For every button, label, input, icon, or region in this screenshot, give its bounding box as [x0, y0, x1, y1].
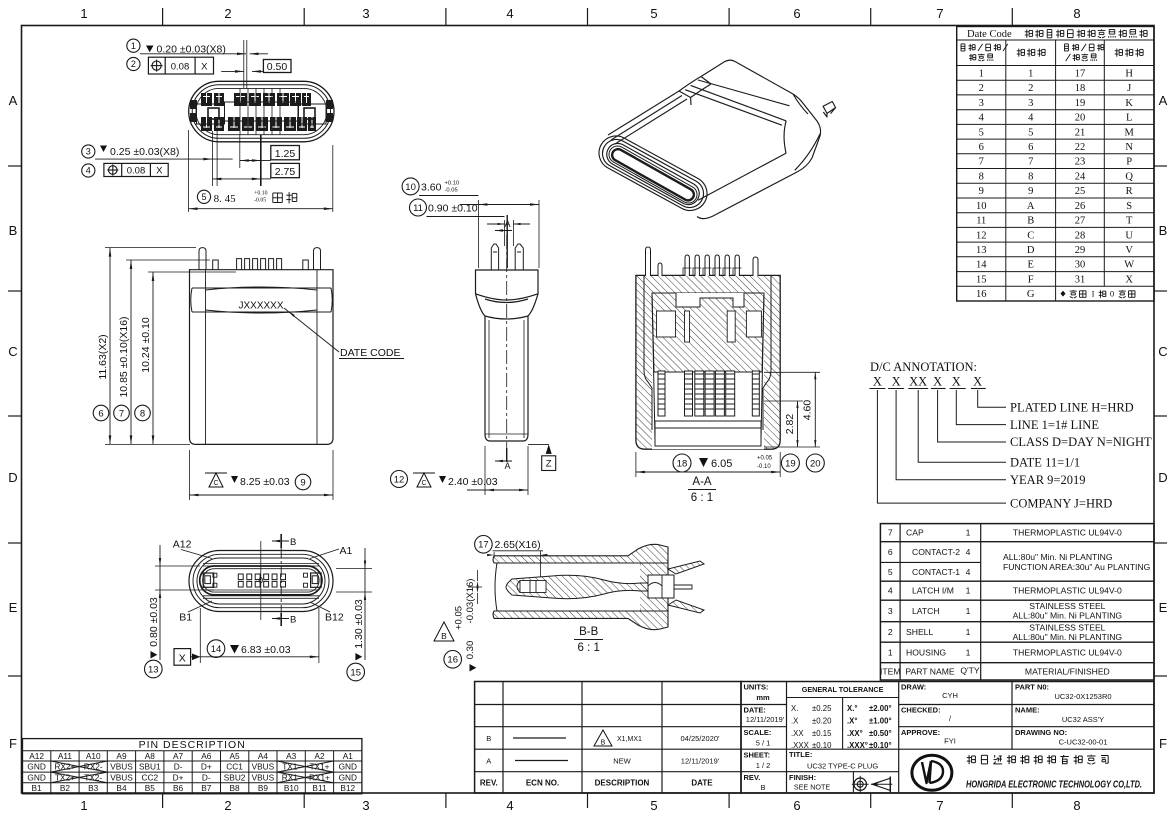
svg-text:X: X	[973, 375, 982, 389]
svg-text:4: 4	[506, 798, 513, 813]
svg-text:2.82: 2.82	[784, 414, 796, 435]
svg-text:HONGRIDA ELECTRONIC TECHNOLOGY: HONGRIDA ELECTRONIC TECHNOLOGY CO,LTD.	[966, 780, 1142, 791]
svg-text:C-UC32-00-01: C-UC32-00-01	[1059, 738, 1108, 747]
svg-text:L: L	[1126, 113, 1132, 124]
svg-text:D: D	[8, 470, 17, 485]
svg-text:G: G	[1027, 289, 1035, 300]
svg-text:A5: A5	[230, 751, 241, 761]
svg-text:B1: B1	[179, 611, 192, 623]
svg-text:C: C	[421, 480, 426, 487]
svg-text:2: 2	[224, 798, 231, 813]
svg-text:0.25 ±0.03(X8): 0.25 ±0.03(X8)	[110, 146, 179, 158]
svg-text:3: 3	[86, 147, 91, 157]
svg-text:T: T	[1126, 216, 1133, 227]
svg-text:A: A	[1159, 93, 1168, 108]
svg-text:10: 10	[976, 201, 987, 212]
svg-text:SHELL: SHELL	[906, 627, 933, 637]
svg-text:COMPANY J=HRD: COMPANY J=HRD	[1010, 496, 1112, 510]
svg-text:A3: A3	[286, 751, 297, 761]
svg-text:REV.: REV.	[744, 773, 761, 782]
svg-text:GND: GND	[27, 762, 45, 772]
svg-text:±0.10: ±0.10	[812, 741, 832, 750]
svg-text:Date Code: Date Code	[967, 29, 1012, 40]
svg-text:GND: GND	[27, 772, 45, 782]
svg-text:A6: A6	[201, 751, 212, 761]
svg-text:3: 3	[1028, 98, 1033, 109]
svg-text:X: X	[873, 375, 882, 389]
svg-text:CYH: CYH	[942, 691, 958, 700]
svg-text:4: 4	[888, 586, 893, 596]
svg-text:A2: A2	[314, 751, 325, 761]
svg-text:0.08: 0.08	[127, 166, 146, 177]
svg-text:A10: A10	[86, 751, 101, 761]
svg-text:I: I	[1092, 289, 1095, 299]
svg-text:1: 1	[966, 627, 971, 637]
svg-text:.XX°: .XX°	[847, 729, 863, 738]
svg-text:0.80 ±0.03: 0.80 ±0.03	[148, 597, 160, 647]
svg-text:A4: A4	[258, 751, 269, 761]
svg-text:GENERAL TOLERANCE: GENERAL TOLERANCE	[802, 685, 884, 694]
svg-text:.X°: .X°	[847, 716, 858, 725]
svg-text:3: 3	[979, 98, 984, 109]
svg-text:E: E	[1027, 260, 1033, 271]
svg-text:+0.10: +0.10	[445, 181, 460, 187]
svg-text:0.30: 0.30	[465, 641, 476, 660]
svg-text:B: B	[1027, 216, 1034, 227]
svg-text:mm: mm	[756, 693, 770, 702]
svg-text:3.60: 3.60	[421, 182, 442, 194]
svg-text:B: B	[290, 615, 296, 626]
svg-text:6: 6	[793, 6, 800, 21]
svg-text:7: 7	[979, 157, 984, 168]
svg-text:4: 4	[86, 166, 91, 176]
svg-text:E: E	[9, 600, 18, 615]
svg-text:2: 2	[224, 6, 231, 21]
svg-text:0: 0	[1110, 289, 1114, 299]
svg-text:PART N0:: PART N0:	[1015, 683, 1049, 692]
svg-text:23: 23	[1075, 157, 1086, 168]
svg-text:A11: A11	[58, 751, 73, 761]
svg-text:D: D	[1158, 470, 1167, 485]
svg-text:X: X	[952, 375, 961, 389]
svg-text:NAME:: NAME:	[1015, 706, 1040, 715]
svg-text:9: 9	[1028, 186, 1033, 197]
svg-text:1: 1	[131, 41, 136, 51]
svg-text:TX1+: TX1+	[309, 762, 329, 772]
svg-text:VBUS: VBUS	[252, 772, 275, 782]
svg-text:F: F	[1159, 736, 1167, 751]
svg-text:11.63(X2): 11.63(X2)	[97, 334, 109, 379]
svg-text:C: C	[1027, 230, 1034, 241]
svg-text:±2.00°: ±2.00°	[869, 704, 892, 713]
svg-text:B10: B10	[284, 783, 299, 793]
svg-text:PLATED LINE H=HRD: PLATED LINE H=HRD	[1010, 401, 1134, 415]
svg-text:3: 3	[362, 6, 369, 21]
svg-text:VBUS: VBUS	[252, 762, 275, 772]
svg-text:B11: B11	[312, 783, 327, 793]
svg-text:K: K	[1125, 98, 1133, 109]
svg-text:GND: GND	[339, 762, 357, 772]
svg-text:THERMOPLASTIC UL94V-0: THERMOPLASTIC UL94V-0	[1013, 586, 1122, 596]
svg-text:1.25: 1.25	[275, 148, 296, 160]
svg-text:5 / 1: 5 / 1	[756, 739, 771, 748]
svg-text:B7: B7	[201, 783, 212, 793]
svg-text:2.40 ±0.03: 2.40 ±0.03	[448, 476, 498, 488]
svg-text:6: 6	[793, 798, 800, 813]
svg-text:SBU1: SBU1	[139, 762, 161, 772]
svg-text:24: 24	[1075, 171, 1086, 182]
svg-text:DESCRIPTION: DESCRIPTION	[595, 779, 650, 788]
svg-text:STAINLESS STEEL: STAINLESS STEEL	[1029, 623, 1105, 633]
svg-text:F: F	[9, 736, 17, 751]
svg-text:B12: B12	[325, 611, 344, 623]
svg-text:B4: B4	[116, 783, 127, 793]
svg-text:27: 27	[1075, 216, 1086, 227]
svg-text:12/11/2019': 12/11/2019'	[746, 715, 785, 724]
svg-text:-0.03(X16): -0.03(X16)	[465, 579, 476, 624]
svg-text:A: A	[505, 461, 511, 471]
svg-text:19: 19	[785, 458, 796, 469]
svg-text:D/C ANNOTATION:: D/C ANNOTATION:	[870, 360, 977, 374]
svg-text:5: 5	[888, 567, 893, 577]
svg-text:20: 20	[1075, 113, 1086, 124]
svg-text:B: B	[486, 734, 491, 743]
svg-text:XX: XX	[909, 375, 927, 389]
svg-text:Z: Z	[546, 459, 552, 470]
svg-text:PART NAME: PART NAME	[905, 666, 954, 676]
svg-text:A12: A12	[29, 751, 44, 761]
svg-text:SCALE:: SCALE:	[744, 728, 772, 737]
svg-text:PIN DESCRIPTION: PIN DESCRIPTION	[139, 739, 246, 751]
svg-text:2: 2	[1028, 83, 1033, 94]
svg-text:M: M	[1124, 127, 1134, 138]
svg-text:4: 4	[506, 6, 513, 21]
svg-text:1: 1	[979, 68, 984, 79]
svg-text:THERMOPLASTIC UL94V-0: THERMOPLASTIC UL94V-0	[1013, 528, 1122, 538]
svg-text:±0.10°: ±0.10°	[869, 741, 892, 750]
svg-text:HOUSING: HOUSING	[906, 648, 946, 658]
svg-text:1: 1	[966, 586, 971, 596]
svg-text:18: 18	[1075, 83, 1086, 94]
svg-text:10: 10	[405, 182, 416, 193]
svg-text:2: 2	[979, 83, 984, 94]
svg-text:DATE 11=1/1: DATE 11=1/1	[1010, 456, 1080, 470]
svg-text:B-B: B-B	[579, 626, 599, 638]
svg-text:6: 6	[979, 142, 984, 153]
svg-text:CHECKED:: CHECKED:	[901, 706, 941, 715]
svg-text:5: 5	[979, 127, 984, 138]
svg-text:SEE NOTE: SEE NOTE	[794, 783, 831, 792]
svg-text:±1.00°: ±1.00°	[869, 716, 892, 725]
svg-text:1: 1	[1028, 68, 1033, 79]
svg-text:2: 2	[131, 59, 136, 69]
svg-text:7: 7	[1028, 157, 1033, 168]
svg-text:±0.20: ±0.20	[812, 716, 832, 725]
svg-text:.X: .X	[791, 716, 799, 725]
svg-text:X: X	[179, 653, 186, 665]
svg-text:C: C	[8, 344, 17, 359]
svg-text:B: B	[601, 740, 606, 747]
svg-text:CLASS D=DAY N=NIGHT: CLASS D=DAY N=NIGHT	[1010, 435, 1152, 449]
svg-text:0.50: 0.50	[267, 61, 288, 73]
svg-text:16: 16	[447, 655, 458, 666]
svg-text:REV.: REV.	[480, 779, 498, 788]
svg-text:D+: D+	[173, 772, 184, 782]
svg-text:U: U	[1125, 230, 1133, 241]
svg-text:X: X	[201, 61, 208, 72]
svg-text:.XX: .XX	[791, 729, 804, 738]
svg-text:A12: A12	[173, 539, 192, 551]
svg-text:5: 5	[650, 798, 657, 813]
svg-text:CONTACT-2: CONTACT-2	[912, 547, 960, 557]
svg-text:26: 26	[1075, 201, 1086, 212]
svg-text:-0.10: -0.10	[757, 464, 771, 470]
svg-text:A1: A1	[340, 545, 353, 557]
svg-text:B12: B12	[340, 783, 355, 793]
svg-text:B3: B3	[88, 783, 99, 793]
svg-text:6.05: 6.05	[711, 458, 732, 470]
svg-text:18: 18	[677, 458, 688, 469]
svg-text:.XXX: .XXX	[791, 741, 810, 750]
svg-text:25: 25	[1075, 186, 1086, 197]
svg-text:Q'TY: Q'TY	[960, 665, 980, 675]
svg-text:31: 31	[1075, 275, 1086, 286]
svg-text:N: N	[1125, 142, 1133, 153]
svg-text:X: X	[933, 375, 942, 389]
svg-text:-0.05: -0.05	[254, 198, 266, 204]
svg-text:30: 30	[1075, 260, 1086, 271]
svg-text:20: 20	[810, 458, 821, 469]
svg-text:DATE CODE: DATE CODE	[340, 347, 400, 359]
svg-text:5: 5	[650, 6, 657, 21]
svg-text:4.60: 4.60	[802, 400, 814, 421]
svg-text:1: 1	[888, 648, 893, 658]
svg-text:UC32 TYPE-C PLUG: UC32 TYPE-C PLUG	[807, 762, 878, 771]
svg-text:B8: B8	[230, 783, 241, 793]
svg-text:D+: D+	[201, 762, 212, 772]
svg-text:ALL:80u" Min. Ni PLANTING: ALL:80u" Min. Ni PLANTING	[1003, 552, 1113, 562]
svg-text:X.: X.	[791, 704, 798, 713]
svg-text:15: 15	[976, 275, 987, 286]
svg-text:ALL:80u" Min. Ni PLANTING: ALL:80u" Min. Ni PLANTING	[1013, 611, 1123, 621]
svg-text:1.30 ±0.03: 1.30 ±0.03	[353, 599, 365, 649]
svg-text:6: 6	[98, 408, 103, 419]
svg-text:VBUS: VBUS	[110, 772, 133, 782]
svg-text:±0.25: ±0.25	[812, 704, 832, 713]
svg-text:X.°: X.°	[847, 704, 858, 713]
svg-text:FUNCTION AREA:30u" Au PLANTING: FUNCTION AREA:30u" Au PLANTING	[1003, 562, 1151, 572]
svg-text:YEAR 9=2019: YEAR 9=2019	[1010, 473, 1085, 487]
svg-text:+0.05: +0.05	[757, 456, 773, 462]
svg-text:1: 1	[966, 528, 971, 538]
svg-text:SBU2: SBU2	[224, 772, 246, 782]
svg-text:6: 6	[888, 547, 893, 557]
svg-text:10.85 ±0.10(X16): 10.85 ±0.10(X16)	[118, 316, 130, 397]
svg-text:A1: A1	[343, 751, 354, 761]
svg-text:4: 4	[1028, 113, 1034, 124]
svg-text:-0.05: -0.05	[445, 188, 458, 194]
svg-text:11: 11	[413, 203, 423, 214]
svg-text:R: R	[1126, 186, 1133, 197]
svg-text:19: 19	[1075, 98, 1086, 109]
svg-text:15: 15	[350, 667, 361, 678]
svg-text:8: 8	[140, 408, 145, 419]
svg-text:4: 4	[966, 547, 971, 557]
svg-text:A8: A8	[145, 751, 156, 761]
svg-text:1: 1	[80, 6, 87, 21]
svg-text:NEW: NEW	[613, 757, 631, 766]
svg-text:X: X	[892, 375, 901, 389]
svg-text:DATE:: DATE:	[744, 706, 766, 715]
svg-text:FYI: FYI	[944, 737, 956, 746]
svg-text:9: 9	[979, 186, 984, 197]
svg-text:.XXX°: .XXX°	[847, 741, 868, 750]
svg-text:A: A	[486, 757, 491, 766]
svg-text:13: 13	[148, 664, 159, 675]
svg-text:12: 12	[394, 474, 405, 485]
svg-text:17: 17	[1075, 68, 1086, 79]
svg-text:7: 7	[888, 528, 893, 538]
svg-text:CC1: CC1	[226, 762, 243, 772]
svg-text:V: V	[1125, 245, 1133, 256]
svg-text:Q: Q	[1125, 171, 1133, 182]
svg-text:D-: D-	[174, 762, 183, 772]
svg-text:±0.15: ±0.15	[812, 729, 832, 738]
svg-text:B: B	[290, 537, 296, 548]
svg-text:RX1+: RX1+	[309, 772, 330, 782]
svg-text:TITLE:: TITLE:	[789, 750, 812, 759]
svg-text:D: D	[1027, 245, 1035, 256]
svg-text:DRAW:: DRAW:	[901, 683, 926, 692]
svg-text:P: P	[1126, 157, 1132, 168]
svg-text:+0.10: +0.10	[254, 191, 268, 197]
svg-text:GND: GND	[339, 772, 357, 782]
svg-text:1 / 2: 1 / 2	[756, 761, 771, 770]
svg-text:CAP: CAP	[906, 528, 924, 538]
svg-text:7: 7	[936, 6, 943, 21]
svg-text:A: A	[1027, 201, 1035, 212]
svg-text:LATCH: LATCH	[912, 606, 940, 616]
svg-text:8: 8	[1073, 798, 1080, 813]
svg-text:0.08: 0.08	[171, 61, 190, 72]
svg-text:0.90 ±0.10: 0.90 ±0.10	[428, 203, 478, 215]
svg-text:DATE: DATE	[691, 779, 713, 788]
svg-text:6 : 1: 6 : 1	[691, 492, 713, 504]
svg-text:8: 8	[1073, 6, 1080, 21]
svg-text:ALL:80u" Min. Ni PLANTING: ALL:80u" Min. Ni PLANTING	[1013, 632, 1123, 642]
svg-text:12: 12	[976, 230, 987, 241]
svg-text:APPROVE:: APPROVE:	[901, 728, 940, 737]
svg-text:4: 4	[979, 113, 985, 124]
svg-text:2: 2	[888, 627, 893, 637]
svg-text:1: 1	[966, 648, 971, 658]
svg-text:D-: D-	[202, 772, 211, 782]
svg-text:A: A	[9, 93, 18, 108]
svg-text:JXXXXXX: JXXXXXX	[238, 301, 283, 312]
svg-text:+0.05: +0.05	[454, 606, 465, 630]
svg-text:RX2-: RX2-	[84, 762, 103, 772]
svg-text:12/11/2019': 12/11/2019'	[681, 757, 720, 766]
svg-text:±0.50°: ±0.50°	[869, 729, 892, 738]
svg-text:A: A	[505, 219, 511, 229]
svg-text:X: X	[156, 166, 163, 177]
svg-text:14: 14	[211, 644, 222, 655]
svg-text:A-A: A-A	[692, 476, 712, 488]
svg-text:F: F	[1028, 275, 1034, 286]
svg-text:8. 45: 8. 45	[214, 193, 237, 205]
svg-text:14: 14	[976, 260, 987, 271]
svg-text:2.65(X16): 2.65(X16)	[495, 539, 541, 551]
svg-text:17: 17	[478, 540, 489, 551]
svg-text:4: 4	[966, 567, 971, 577]
svg-text:MATERIAL/FINISHED: MATERIAL/FINISHED	[1025, 666, 1110, 676]
svg-text:CONTACT-1: CONTACT-1	[912, 567, 960, 577]
svg-text:8: 8	[979, 171, 984, 182]
svg-text:UNITS:: UNITS:	[744, 683, 769, 692]
svg-text:RX2+: RX2+	[54, 762, 75, 772]
svg-text:B: B	[760, 783, 765, 792]
svg-text:LATCH I/M: LATCH I/M	[912, 586, 954, 596]
svg-text:THERMOPLASTIC UL94V-0: THERMOPLASTIC UL94V-0	[1013, 648, 1122, 658]
svg-text:A9: A9	[116, 751, 127, 761]
svg-text:C: C	[1158, 344, 1167, 359]
svg-text:W: W	[1124, 260, 1134, 271]
svg-text:X1,MX1: X1,MX1	[617, 736, 642, 743]
svg-text:6: 6	[1028, 142, 1033, 153]
svg-text:ITEM: ITEM	[880, 666, 901, 676]
svg-text:DRAWING NO:: DRAWING NO:	[1015, 728, 1067, 737]
svg-text:7: 7	[936, 798, 943, 813]
svg-text:B: B	[9, 223, 18, 238]
svg-text:FINISH:: FINISH:	[789, 773, 816, 782]
svg-text:B9: B9	[258, 783, 269, 793]
svg-text:J: J	[1127, 83, 1131, 94]
svg-text:STAINLESS STEEL: STAINLESS STEEL	[1029, 601, 1105, 611]
svg-text:21: 21	[1075, 127, 1086, 138]
svg-text:ECN NO.: ECN NO.	[526, 779, 559, 788]
svg-text:A7: A7	[173, 751, 184, 761]
svg-text:X: X	[1125, 275, 1133, 286]
svg-text:S: S	[1126, 201, 1132, 212]
svg-text:H: H	[1125, 68, 1133, 79]
svg-text:B5: B5	[145, 783, 156, 793]
svg-text:6.83 ±0.03: 6.83 ±0.03	[241, 644, 291, 656]
svg-text:SHEET:: SHEET:	[744, 751, 771, 760]
svg-text:3: 3	[362, 798, 369, 813]
svg-text:5: 5	[1028, 127, 1033, 138]
svg-text:11: 11	[976, 216, 986, 227]
svg-text:E: E	[1159, 600, 1168, 615]
svg-text:28: 28	[1075, 230, 1086, 241]
svg-text:8: 8	[1028, 171, 1033, 182]
svg-text:VBUS: VBUS	[110, 762, 133, 772]
svg-text:B: B	[1159, 223, 1168, 238]
svg-text:B2: B2	[60, 783, 71, 793]
svg-text:04/25/2020': 04/25/2020'	[681, 734, 721, 743]
svg-text:B6: B6	[173, 783, 184, 793]
svg-text:2.75: 2.75	[275, 166, 296, 178]
svg-text:C: C	[213, 480, 218, 487]
svg-text:22: 22	[1075, 142, 1086, 153]
svg-text:CC2: CC2	[141, 772, 158, 782]
svg-text:9: 9	[300, 477, 305, 488]
svg-text:1: 1	[966, 606, 971, 616]
svg-text:13: 13	[976, 245, 987, 256]
svg-text:B1: B1	[32, 783, 43, 793]
svg-text:16: 16	[976, 289, 987, 300]
svg-text:3: 3	[888, 606, 893, 616]
svg-text:10.24 ±0.10: 10.24 ±0.10	[140, 317, 152, 373]
